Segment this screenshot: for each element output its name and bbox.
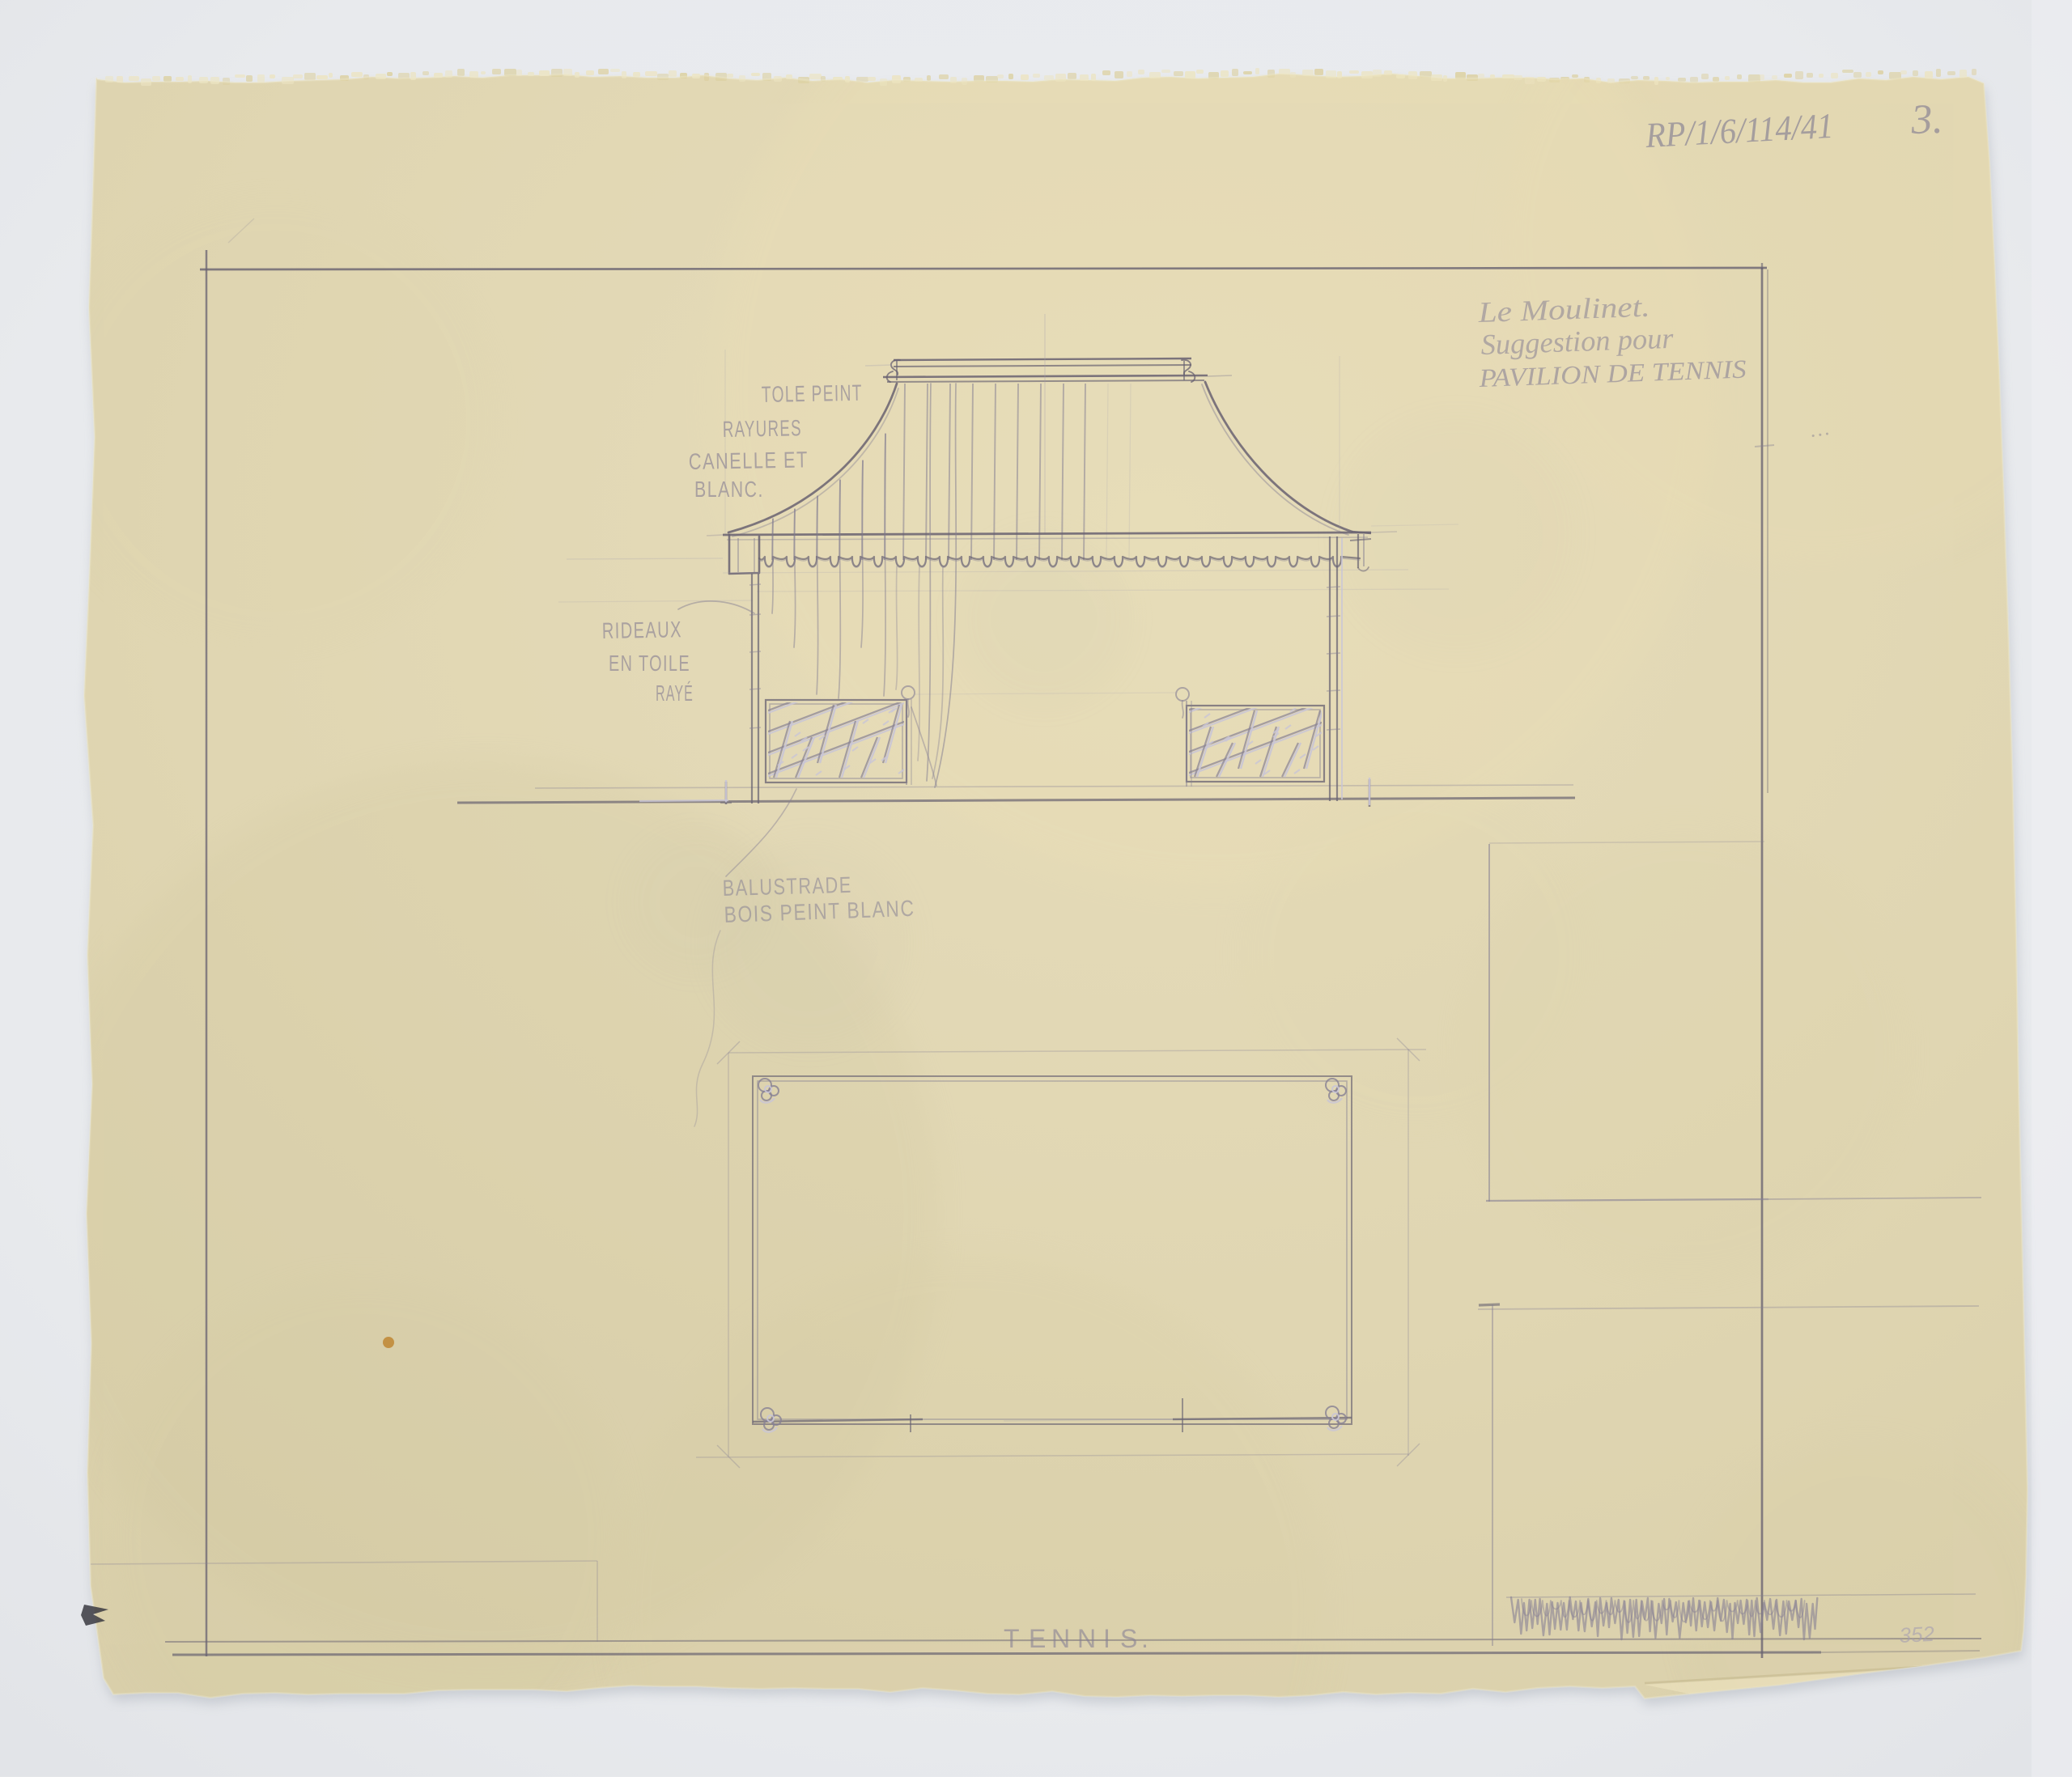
svg-text:EN TOILE: EN TOILE: [609, 651, 690, 676]
svg-text:.: .: [1141, 1624, 1149, 1653]
svg-text:N: N: [1077, 1624, 1096, 1653]
svg-text:RIDEAUX: RIDEAUX: [602, 617, 683, 643]
svg-text:3.: 3.: [1909, 96, 1943, 143]
svg-text:Suggestion pour: Suggestion pour: [1480, 322, 1675, 361]
svg-text:352: 352: [1899, 1622, 1935, 1647]
svg-text:N: N: [1051, 1624, 1070, 1653]
svg-text:…: …: [1809, 416, 1831, 442]
svg-text:BALUSTRADE: BALUSTRADE: [722, 872, 852, 901]
svg-text:T: T: [1004, 1624, 1020, 1653]
svg-text:RAYÉ: RAYÉ: [656, 681, 694, 706]
svg-text:CANELLE ET: CANELLE ET: [689, 447, 809, 474]
svg-text:I: I: [1103, 1624, 1110, 1653]
svg-text:E: E: [1029, 1624, 1046, 1653]
svg-text:S: S: [1120, 1624, 1137, 1653]
svg-text:RAYURES: RAYURES: [723, 415, 803, 442]
svg-text:TOLE PEINT: TOLE PEINT: [762, 380, 864, 407]
svg-text:BLANC.: BLANC.: [694, 477, 764, 502]
